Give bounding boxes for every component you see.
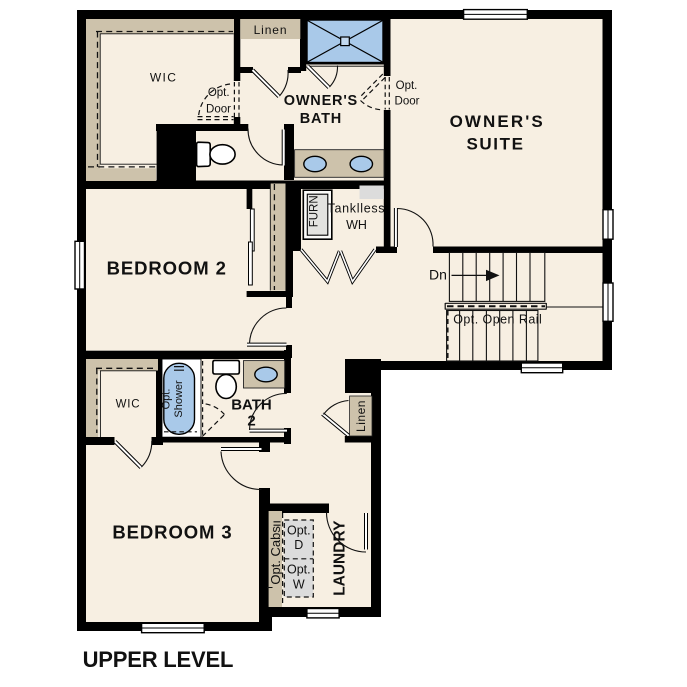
svg-text:Opt.: Opt. bbox=[287, 563, 311, 577]
svg-text:Door: Door bbox=[206, 104, 231, 116]
svg-text:BATH: BATH bbox=[300, 111, 342, 127]
svg-text:Opt.: Opt. bbox=[396, 80, 418, 92]
svg-text:BEDROOM 2: BEDROOM 2 bbox=[107, 258, 227, 279]
svg-text:Door: Door bbox=[395, 95, 420, 107]
svg-text:Opt. Cabs: Opt. Cabs bbox=[268, 526, 283, 585]
svg-text:FURN: FURN bbox=[309, 195, 321, 227]
svg-text:SUITE: SUITE bbox=[466, 135, 524, 154]
svg-text:LAUNDRY: LAUNDRY bbox=[332, 520, 349, 596]
svg-text:OWNER'S: OWNER'S bbox=[284, 93, 358, 109]
svg-text:BATH: BATH bbox=[231, 396, 272, 413]
svg-text:Linen: Linen bbox=[354, 400, 368, 432]
svg-text:W: W bbox=[293, 578, 305, 592]
svg-text:Linen: Linen bbox=[254, 23, 288, 37]
svg-text:UPPER LEVEL: UPPER LEVEL bbox=[83, 647, 234, 672]
svg-text:Opt.: Opt. bbox=[161, 389, 173, 410]
svg-text:Opt.: Opt. bbox=[287, 524, 311, 538]
svg-text:D: D bbox=[294, 538, 303, 552]
svg-text:OWNER'S: OWNER'S bbox=[450, 112, 545, 131]
svg-text:WIC: WIC bbox=[116, 399, 141, 411]
svg-text:WIC: WIC bbox=[150, 71, 178, 85]
svg-text:WH: WH bbox=[346, 218, 367, 232]
svg-text:Tanklless: Tanklless bbox=[328, 202, 386, 216]
svg-text:Opt.: Opt. bbox=[208, 87, 230, 99]
svg-text:Opt. Open Rail: Opt. Open Rail bbox=[453, 313, 542, 327]
svg-text:Dn: Dn bbox=[429, 267, 447, 283]
svg-text:Shower: Shower bbox=[173, 380, 185, 418]
svg-text:2: 2 bbox=[247, 412, 255, 429]
svg-text:BEDROOM 3: BEDROOM 3 bbox=[112, 522, 232, 543]
